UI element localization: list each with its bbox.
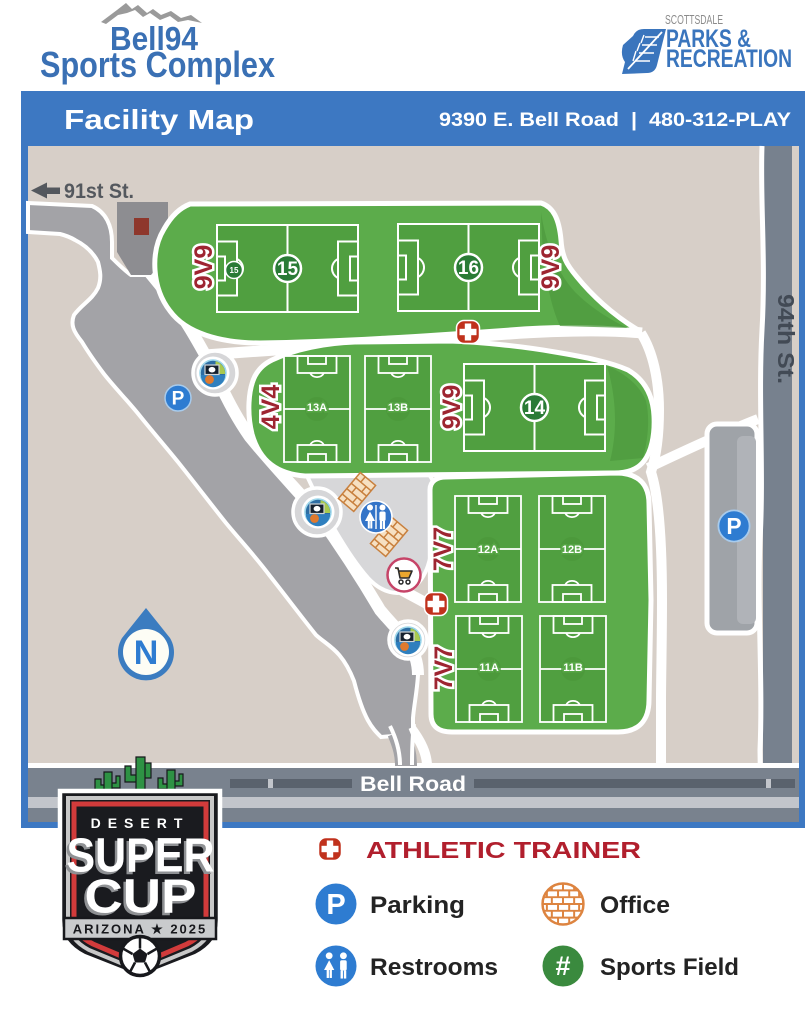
svg-text:11A: 11A <box>479 662 499 674</box>
svg-text:CUP: CUP <box>85 871 197 924</box>
svg-text:Restrooms: Restrooms <box>370 954 498 981</box>
svg-text:P: P <box>326 889 345 921</box>
svg-text:11B: 11B <box>563 662 583 674</box>
svg-text:Sports Complex: Sports Complex <box>40 44 275 85</box>
svg-text:Office: Office <box>600 892 670 919</box>
svg-text:RECREATION: RECREATION <box>666 45 792 73</box>
svg-text:7V7: 7V7 <box>430 646 458 690</box>
svg-text:9V9: 9V9 <box>438 385 466 429</box>
svg-text:Sports Field: Sports Field <box>600 954 739 981</box>
svg-text:ARIZONA ★ 2025: ARIZONA ★ 2025 <box>73 922 208 937</box>
svg-text:12A: 12A <box>478 544 498 556</box>
svg-text:9390 E. Bell Road | 480-312-: 9390 E. Bell Road | 480-312-PLAY <box>439 109 791 131</box>
svg-text:Bell Road: Bell Road <box>360 773 466 796</box>
svg-text:16: 16 <box>458 258 479 279</box>
svg-text:9V9: 9V9 <box>537 245 565 289</box>
svg-text:Facility Map: Facility Map <box>64 104 254 135</box>
svg-text:13A: 13A <box>307 402 327 414</box>
svg-text:13B: 13B <box>388 402 408 414</box>
svg-text:15: 15 <box>277 259 299 280</box>
svg-text:7V7: 7V7 <box>429 527 457 571</box>
svg-text:12B: 12B <box>562 544 582 556</box>
svg-text:4V4: 4V4 <box>257 385 285 430</box>
svg-text:9V9: 9V9 <box>190 245 218 289</box>
svg-text:N: N <box>134 634 159 672</box>
svg-text:14: 14 <box>524 398 546 419</box>
svg-text:94th St.: 94th St. <box>773 294 799 384</box>
svg-text:#: # <box>555 951 570 981</box>
svg-text:ATHLETIC TRAINER: ATHLETIC TRAINER <box>366 837 641 863</box>
svg-text:Parking: Parking <box>370 892 465 919</box>
svg-text:15: 15 <box>230 266 239 275</box>
svg-text:91st St.: 91st St. <box>64 180 134 203</box>
